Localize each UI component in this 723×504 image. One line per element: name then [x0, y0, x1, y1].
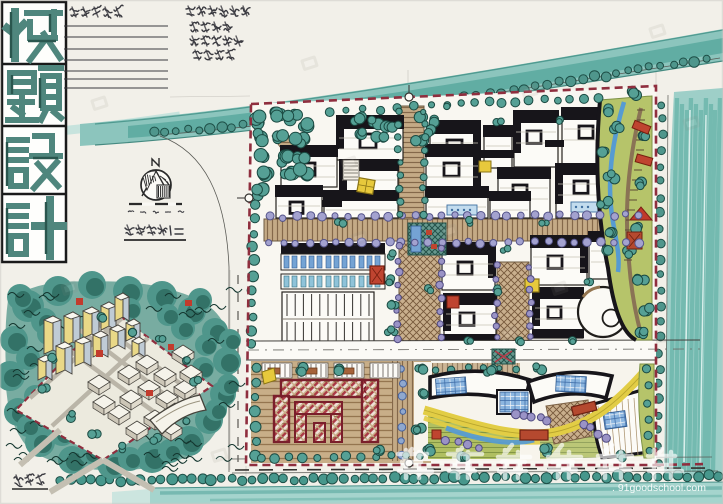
svg-text:. 91goodschool.com: . 91goodschool.com	[612, 482, 706, 494]
